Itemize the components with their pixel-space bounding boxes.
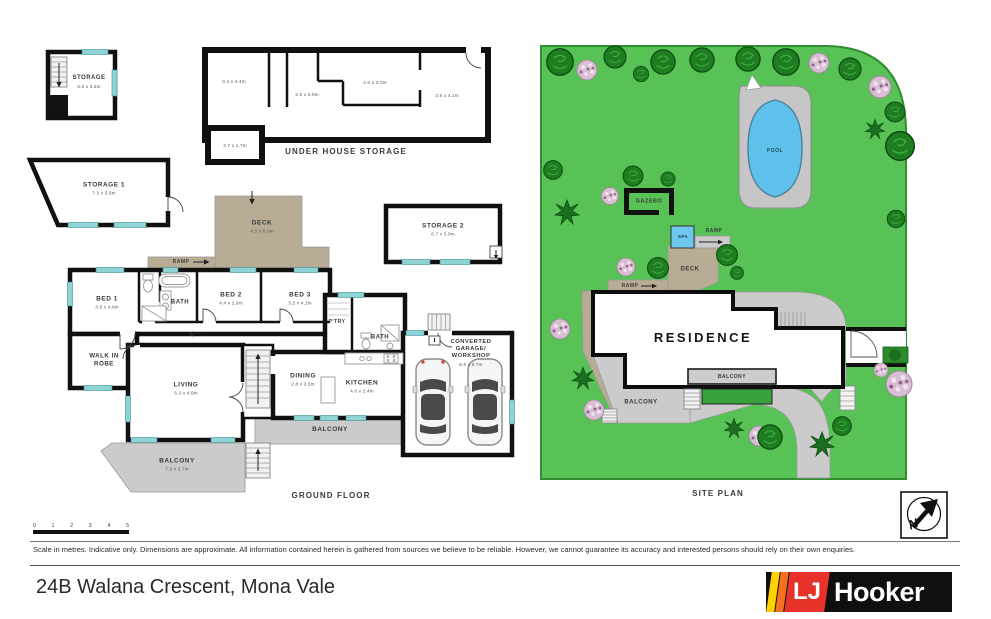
plan-canvas: N: [0, 0, 991, 619]
bush-icon: [602, 188, 619, 205]
tree-icon: [833, 417, 852, 436]
scale-tick: 4: [108, 523, 111, 529]
disclaimer-text: Scale in metres. Indicative only. Dimens…: [33, 545, 855, 554]
floorplan-page: N STORAGE 3.6 x 3.4m STORAGE 1 7.3 x 3.6…: [0, 0, 991, 619]
bush-icon: [617, 258, 635, 276]
divider-top: [30, 541, 960, 542]
tree-icon: [887, 210, 905, 228]
tree-icon: [839, 58, 861, 80]
car-icon: [413, 359, 453, 445]
tree-icon: [758, 425, 782, 449]
room-living: [128, 345, 243, 440]
ljhooker-logo: LJ Hooker: [766, 572, 952, 612]
bush-icon: [577, 60, 597, 80]
tree-icon: [633, 66, 648, 81]
site-deck-area: [668, 246, 718, 290]
tree-icon: [544, 161, 563, 180]
bush-icon: [809, 53, 829, 73]
tree-icon: [736, 47, 760, 71]
tree-icon: [730, 266, 743, 279]
tree-icon: [547, 49, 573, 75]
gate-wall-top: [846, 327, 906, 331]
divider-bottom: [30, 565, 960, 566]
logo-hooker-text: Hooker: [834, 577, 924, 608]
tree-icon: [648, 258, 669, 279]
scale-ticks: 0 1 2 3 4 5: [33, 523, 129, 529]
tree-icon: [886, 132, 915, 161]
bush-icon: [874, 363, 888, 377]
pool-water: [748, 100, 802, 197]
bush-icon: [869, 76, 891, 98]
logo-lj-text: LJ: [793, 578, 821, 606]
tree-icon: [690, 48, 714, 72]
scale-tick: 1: [52, 523, 55, 529]
bush-icon: [886, 371, 912, 397]
scale-tick: 0: [33, 523, 36, 529]
room-storage2: [386, 206, 500, 262]
logo-lj-box: LJ: [784, 572, 830, 612]
annex-passage: [214, 133, 254, 143]
bush-icon: [584, 400, 604, 420]
scale-bar-rule: [33, 530, 129, 534]
scale-tick: 3: [89, 523, 92, 529]
site-balcony-upper-area: [688, 369, 776, 384]
tree-icon: [661, 172, 675, 186]
north-compass: N: [901, 492, 947, 538]
property-address: 24B Walana Crescent, Mona Vale: [36, 576, 335, 599]
room-storage1: [30, 160, 168, 225]
balcony-front-area: [101, 443, 245, 492]
ground-floor-plan: [30, 47, 515, 492]
tree-icon: [604, 46, 626, 68]
garage-entry-stairs: [428, 314, 450, 330]
tree-icon: [885, 102, 905, 122]
deck-area: [215, 196, 329, 268]
scale-bar: 0 1 2 3 4 5: [33, 523, 129, 534]
tree-icon: [773, 49, 799, 75]
hedge-tree-icon: [889, 349, 901, 361]
tree-icon: [623, 166, 643, 186]
tree-icon: [717, 245, 738, 266]
bush-icon: [550, 319, 570, 339]
storage-notch: [48, 95, 68, 118]
scale-tick: 2: [70, 523, 73, 529]
scale-tick: 5: [126, 523, 129, 529]
site-planter: [702, 389, 772, 404]
car-icon: [465, 359, 505, 445]
site-plan: [541, 46, 914, 479]
tree-icon: [651, 50, 675, 74]
spa-area: [671, 226, 694, 248]
site-planter-stairs: [684, 389, 700, 409]
site-ramp-lower-area: [608, 280, 670, 291]
